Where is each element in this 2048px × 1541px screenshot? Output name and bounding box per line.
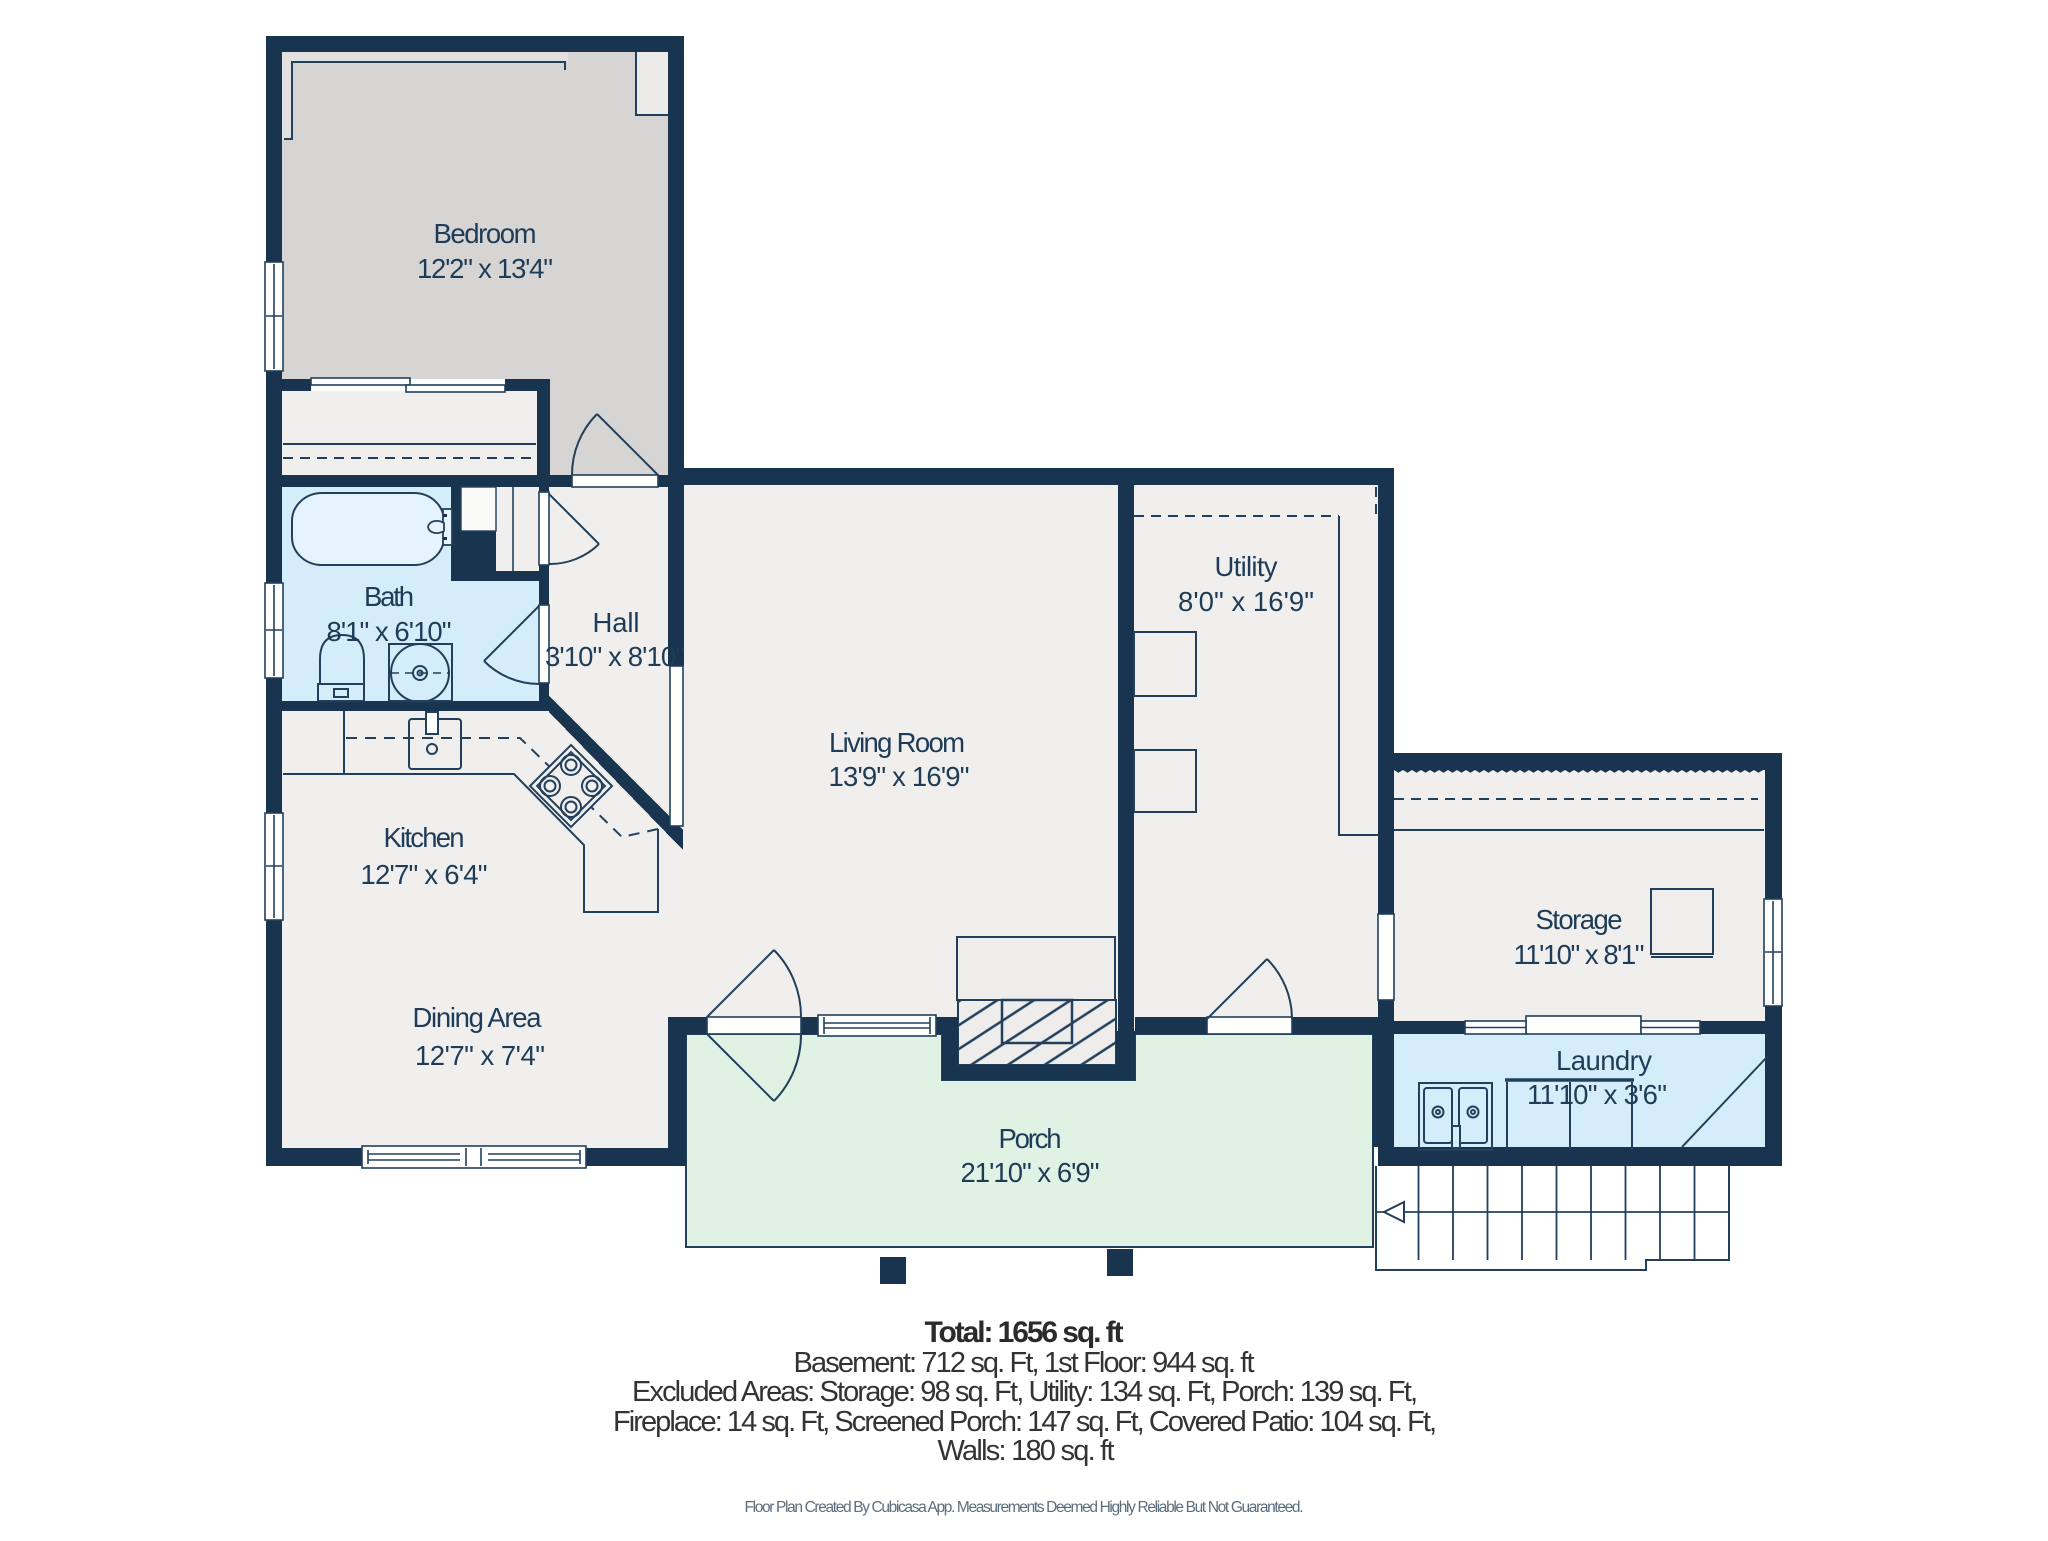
svg-text:11'10" x 8'1": 11'10" x 8'1" [1514,939,1645,970]
svg-text:11'10" x 3'6": 11'10" x 3'6" [1527,1079,1667,1110]
svg-text:Bath: Bath [364,581,414,612]
svg-text:Porch: Porch [999,1123,1062,1154]
svg-text:13'9" x 16'9": 13'9" x 16'9" [829,761,970,792]
svg-text:Dining Area: Dining Area [413,1002,543,1033]
svg-text:21'10" x 6'9": 21'10" x 6'9" [961,1157,1100,1188]
svg-text:Kitchen: Kitchen [384,822,465,853]
svg-text:8'0" x 16'9": 8'0" x 16'9" [1178,586,1314,617]
svg-text:Basement: 712 sq. Ft, 1st Floo: Basement: 712 sq. Ft, 1st Floor: 944 sq.… [794,1347,1255,1379]
svg-text:Fireplace: 14 sq. Ft, Screened: Fireplace: 14 sq. Ft, Screened Porch: 14… [613,1406,1437,1438]
svg-text:Total: 1656 sq. ft: Total: 1656 sq. ft [925,1316,1124,1349]
svg-text:3'10" x 8'10": 3'10" x 8'10" [545,641,685,672]
svg-text:Hall: Hall [593,607,640,638]
svg-text:8'1" x 6'10": 8'1" x 6'10" [327,616,452,647]
svg-text:Storage: Storage [1536,904,1623,935]
svg-text:Living Room: Living Room [829,727,965,758]
svg-text:Walls: 180 sq. ft: Walls: 180 sq. ft [938,1435,1115,1467]
svg-text:Utility: Utility [1215,551,1278,582]
svg-text:Laundry: Laundry [1556,1045,1652,1076]
svg-text:Floor Plan Created By Cubicasa: Floor Plan Created By Cubicasa App. Meas… [745,1499,1304,1516]
svg-text:12'7" x 7'4": 12'7" x 7'4" [415,1040,545,1071]
svg-text:Bedroom: Bedroom [434,218,537,249]
svg-text:12'7" x 6'4": 12'7" x 6'4" [361,859,488,890]
svg-text:Excluded Areas: Storage: 98 sq: Excluded Areas: Storage: 98 sq. Ft, Util… [632,1376,1418,1408]
svg-text:12'2" x 13'4": 12'2" x 13'4" [417,253,553,284]
